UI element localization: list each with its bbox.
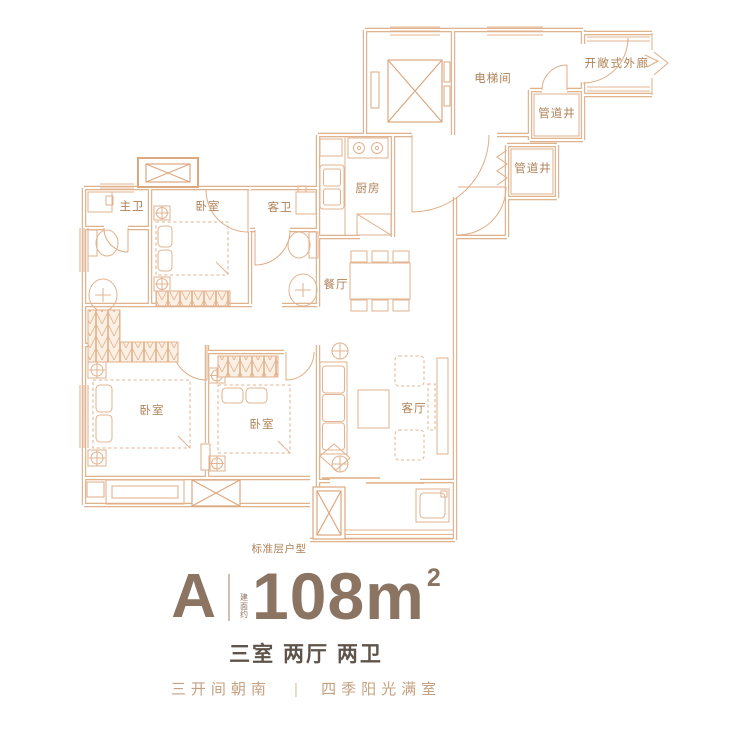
tagline-left: 三开间朝南 [171,681,271,698]
unit-letter: A [171,573,216,621]
room-label-pipe-shaft-2: 管道井 [514,161,552,175]
area-prefix: 建面约 [239,594,249,620]
area-unit: m [365,572,424,622]
room-label-living: 客厅 [402,401,427,415]
guest-bath-fixtures [288,186,318,306]
room-label-pipe-shaft-1: 管道井 [538,106,576,120]
south-window-box [192,480,240,506]
bedroom-north-furniture [154,206,230,306]
dining-table [350,251,410,311]
room-label-bedroom-north: 卧室 [196,199,221,213]
tagline: 三开间朝南 | 四季阳光满室 [0,678,612,699]
area-superscript: 2 [427,566,441,591]
tagline-right: 四季阳光满室 [321,681,441,698]
room-label-master-bath: 主卫 [120,200,145,213]
tagline-divider: | [280,681,312,698]
room-label-guest-bath: 客卫 [268,200,293,214]
area-value: 108 [252,572,365,622]
title-divider [228,574,230,621]
shaft-door-arc [542,65,567,90]
room-label-dining: 餐厅 [324,277,349,291]
master-bath-fixtures [88,192,118,311]
room-label-kitchen: 厨房 [356,182,381,195]
master-bath-door-arc [104,228,128,252]
floor-plan-drawing: 主卫 卧室 客卫 厨房 餐厅 电梯间 开敞式外廊 管道井 管道井 卧室 卧室 客… [0,0,746,572]
guest-bath-door-arc [255,230,290,265]
room-label-bedroom-middle: 卧室 [250,417,275,431]
elevator-shaft [371,60,450,122]
room-label-elevator-hall: 电梯间 [474,72,512,85]
living-room-furniture [320,343,448,472]
layout-summary: 三室 两厅 两卫 [0,638,612,668]
balcony-slider-door [322,478,424,483]
balcony-washer [416,489,449,522]
bedroom-middle-furniture [209,356,290,471]
entry-door-arc [412,135,489,212]
balcony-column-box [313,487,345,539]
floor-note: 标准层户型 [252,542,307,555]
north-bay-box [138,158,198,187]
bedroom-middle-door-arc [286,352,314,380]
room-label-bedroom-west: 卧室 [140,403,165,417]
floor-plan-page: 主卫 卧室 客卫 厨房 餐厅 电梯间 开敞式外廊 管道井 管道井 卧室 卧室 客… [0,0,746,746]
unit-title-row: A 建面约 108 m 2 [0,572,612,622]
bedroom-west-furniture [88,310,190,466]
vestibule-door-arc [458,187,506,235]
title-block: A 建面约 108 m 2 三室 两厅 两卫 三开间朝南 | 四季阳光满室 [0,572,612,699]
room-label-open-corridor: 开敞式外廊 [585,56,650,70]
